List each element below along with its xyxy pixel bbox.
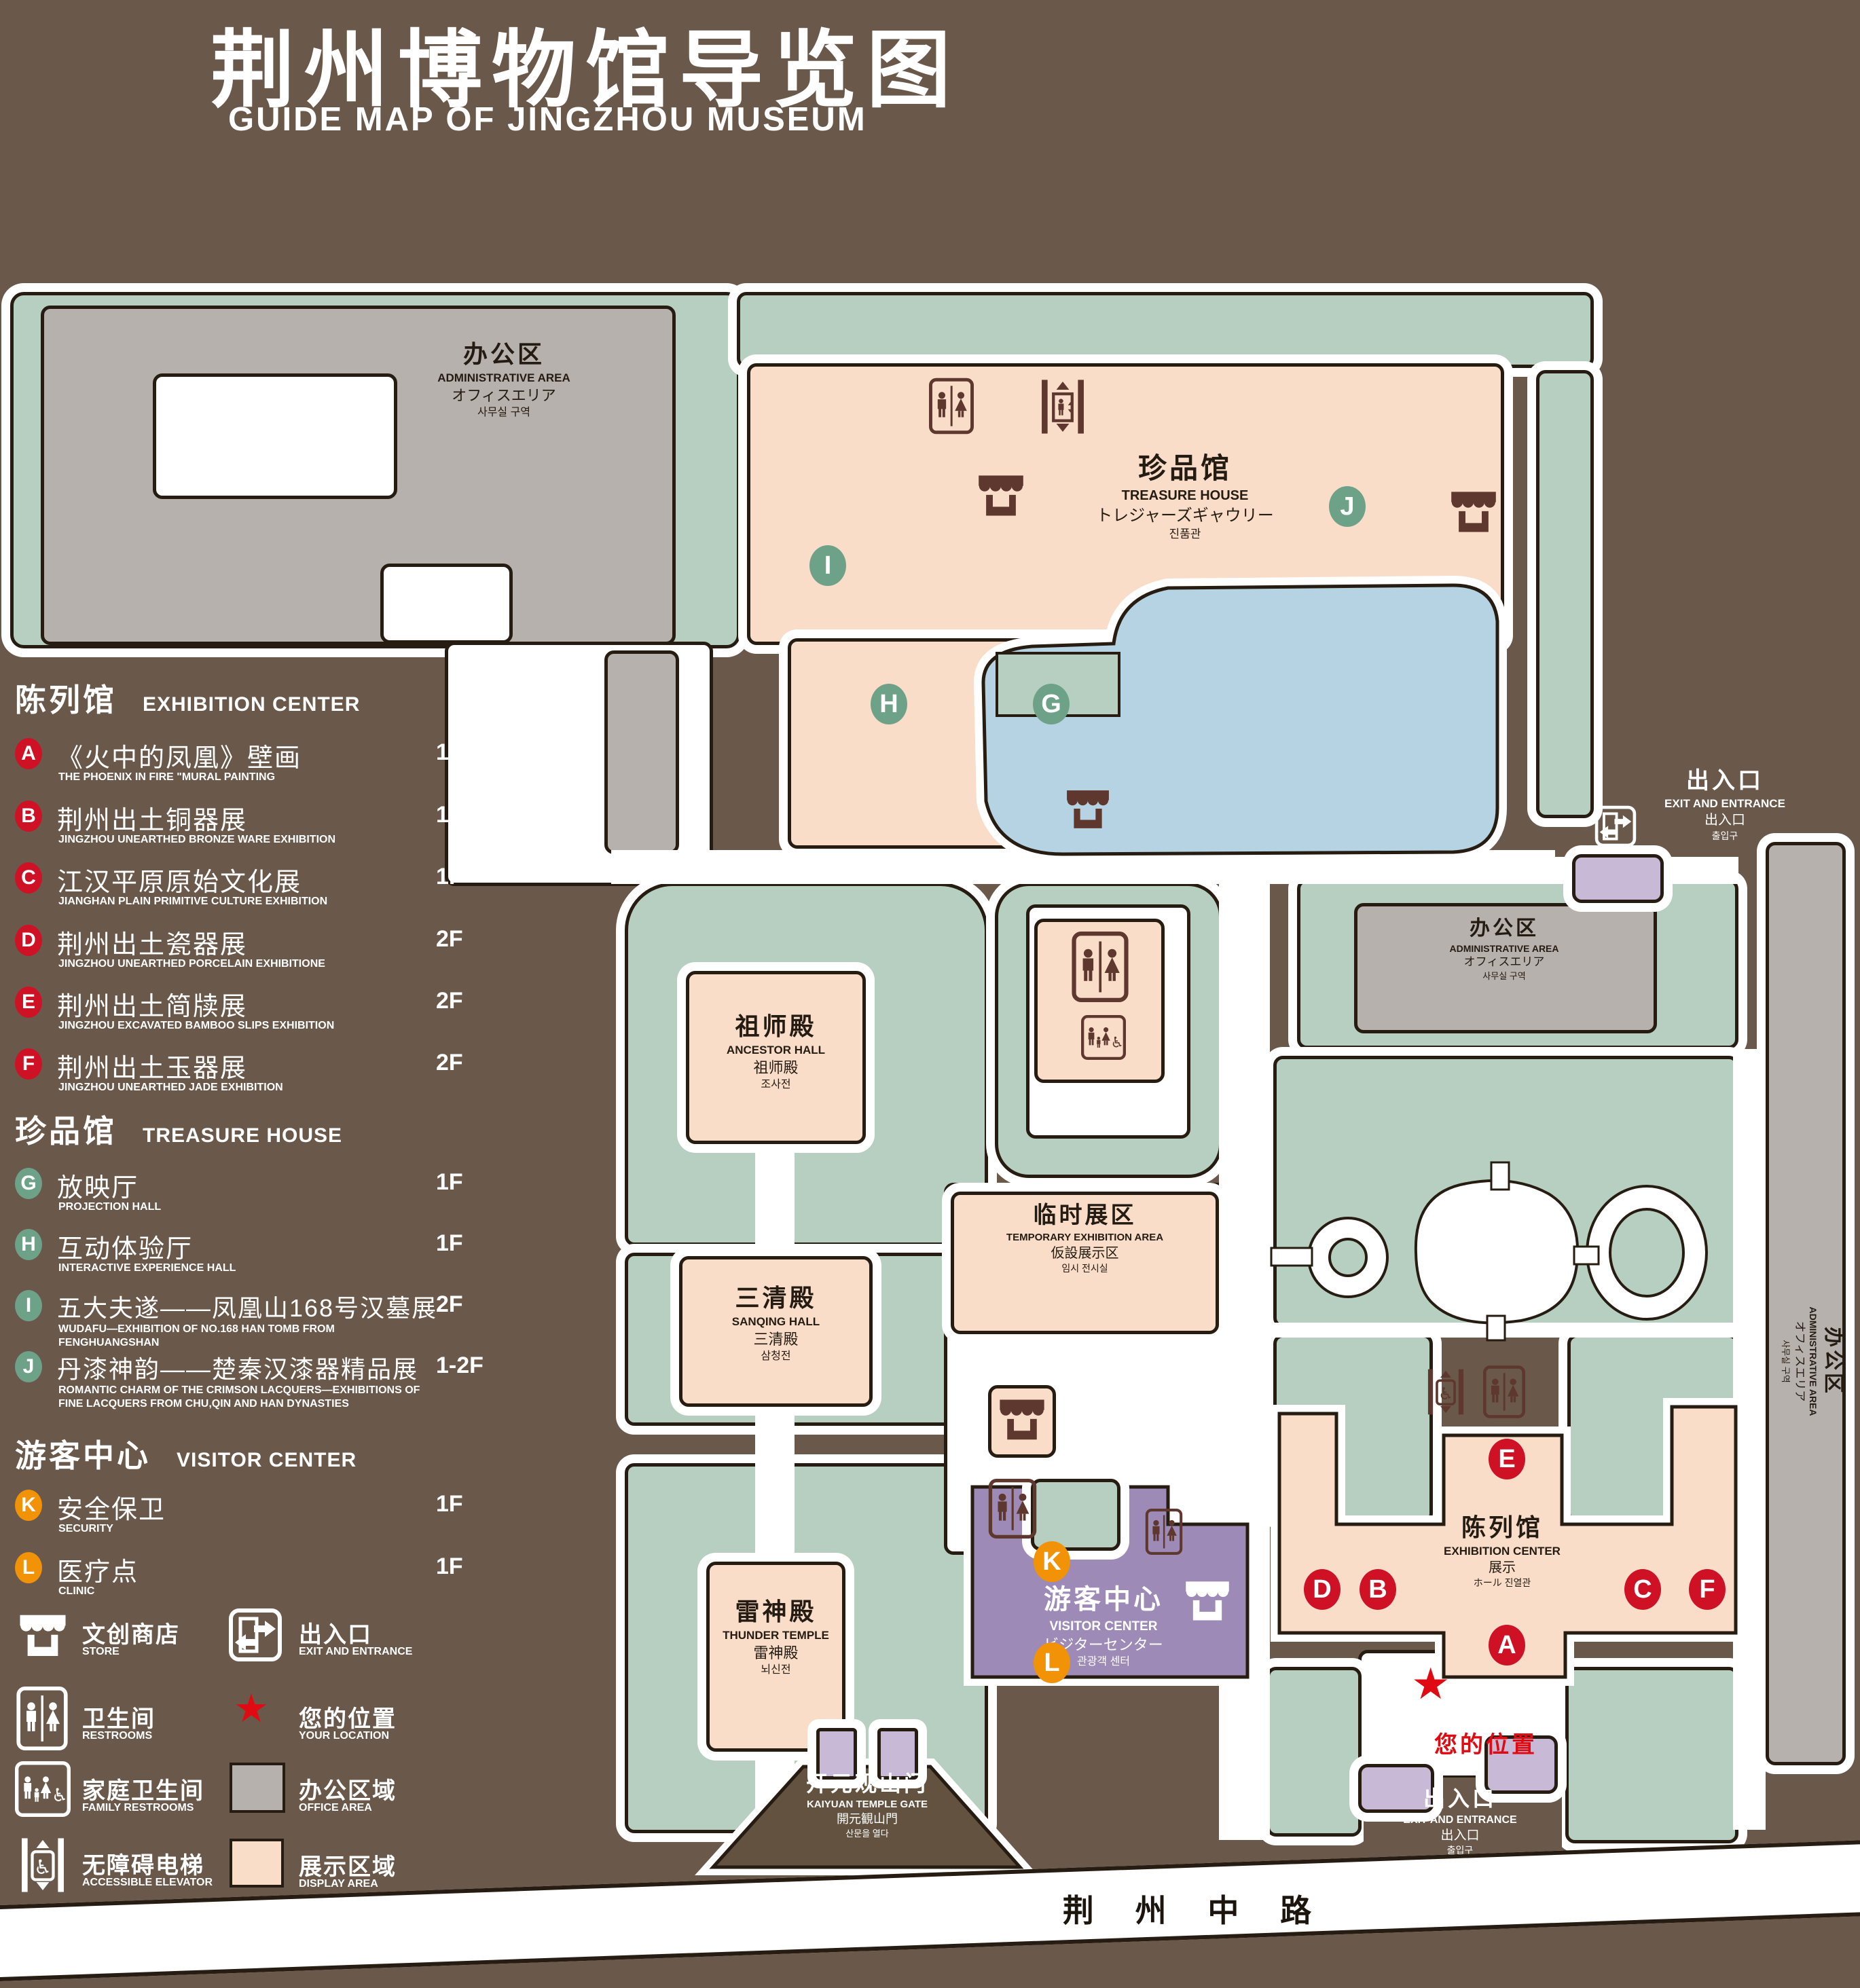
road-label: 荆 州 中 路 (1046, 1886, 1345, 1931)
map-badge-B: B (1360, 1569, 1396, 1610)
restroom-icon (1145, 1509, 1183, 1555)
restroom-icon (1483, 1361, 1525, 1423)
restroom-icon (988, 1479, 1037, 1539)
legend-section-visitor: 游客中心VISITOR CENTER (15, 1431, 357, 1476)
label-admin-northwest: 办公区ADMINISTRATIVE AREAオフィスエリア사무실 구역 (368, 338, 640, 420)
accessible-elevator-icon (16, 1836, 69, 1894)
store-icon (1448, 489, 1499, 536)
map-badge-C: C (1624, 1569, 1661, 1610)
map-badge-I: I (809, 545, 846, 586)
label-exhibition-center: 陈列馆EXHIBITION CENTER展示ホール 진열관 (1387, 1511, 1618, 1589)
legend-item-C: C江汉平原原始文化展JIANGHAN PLAIN PRIMITIVE CULTU… (15, 861, 484, 922)
map-badge-K: K (1034, 1541, 1070, 1582)
map-badge-G: G (1033, 684, 1070, 724)
label-exit-south: 出入口EXIT AND ENTRANCE出入口출입구 (1358, 1784, 1562, 1857)
legend-item-A: A《火中的凤凰》壁画THE PHOENIX IN FIRE "MURAL PAI… (15, 737, 484, 798)
legend-item-K: K安全保卫SECURITY1F (15, 1488, 484, 1549)
restroom-icon (929, 378, 974, 435)
family-restroom-icon (15, 1761, 71, 1817)
location-star-icon: ★ (234, 1689, 269, 1729)
store-icon (17, 1608, 69, 1665)
label-exit-northeast: 出入口EXIT AND ENTRANCE出入口출입구 (1643, 766, 1806, 842)
building-entrance-northeast (1572, 854, 1664, 903)
map-badge-L: L (1034, 1642, 1070, 1683)
legend-item-F: F荆州出土玉器展JINGZHOU UNEARTHED JADE EXHIBITI… (15, 1047, 484, 1108)
exit-icon (228, 1606, 282, 1663)
legend-item-G: G放映厅PROJECTION HALL1F (15, 1166, 484, 1228)
label-ancestor-hall: 祖师殿ANCESTOR HALL祖师殿조사전 (686, 1010, 866, 1092)
legend-item-J: J丹漆神韵——楚秦汉漆器精品展ROMANTIC CHARM OF THE CRI… (15, 1350, 484, 1411)
location-star-icon: ★ (1411, 1662, 1450, 1706)
store-icon (975, 473, 1027, 520)
legend-item-I: I五大夫遂——凤凰山168号汉墓展WUDAFU—EXHIBITION OF NO… (15, 1289, 484, 1350)
elevator-icon (1039, 378, 1087, 436)
map-badge-E: E (1489, 1439, 1525, 1479)
map-badge-A: A (1489, 1625, 1525, 1665)
store-icon (1183, 1577, 1232, 1627)
map-badge-D: D (1304, 1569, 1341, 1610)
display-area-swatch (230, 1839, 284, 1888)
restroom-icon (15, 1687, 69, 1750)
label-thunder-temple: 雷神殿THUNDER TEMPLE雷神殿뇌신전 (693, 1596, 859, 1677)
exit-icon (1594, 805, 1637, 847)
garden-paths (1271, 1162, 1707, 1340)
label-sanqing-hall: 三清殿SANQING HALL三清殿삼청전 (679, 1282, 873, 1363)
store-icon (1063, 788, 1112, 832)
store-icon (997, 1396, 1047, 1445)
page-subtitle: GUIDE MAP OF JINGZHOU MUSEUM (228, 100, 867, 139)
accessible-elevator-icon (1426, 1362, 1465, 1422)
legend-section-treasure: 珍品馆TREASURE HOUSE (15, 1107, 342, 1152)
your-location-label: 您的位置 (1377, 1726, 1594, 1759)
legend-item-E: E荆州出土简牍展JINGZHOU EXCAVATED BAMBOO SLIPS … (15, 985, 484, 1046)
legend-item-H: H互动体验厅INTERACTIVE EXPERIENCE HALL1F (15, 1228, 484, 1289)
legend-item-D: D荆州出土瓷器展JINGZHOU UNEARTHED PORCELAIN EXH… (15, 923, 484, 984)
family-restroom-icon (1081, 1012, 1126, 1063)
map-area-visitor-notch (1031, 1479, 1120, 1551)
label-treasure-house: 珍品馆TREASURE HOUSEトレジャーズギャウリー진품관 (1022, 449, 1348, 542)
label-gate-kaiyuan: 开元观山门KAIYUAN TEMPLE GATE開元観山門산문을 열다 (755, 1769, 979, 1839)
label-temporary-exhibition: 临时展区TEMPORARY EXHIBITION AREA仮設展示区임시 전시실 (951, 1200, 1219, 1275)
label-visitor-center: 游客中心VISITOR CENTERビジターセンター관광객 센터 (1002, 1582, 1205, 1669)
legend-item-L: L医疗点CLINIC1F (15, 1551, 484, 1612)
map-badge-H: H (871, 684, 907, 724)
label-admin-mid: 办公区ADMINISTRATIVE AREAオフィスエリア사무실 구역 (1368, 915, 1640, 982)
restroom-icon (1072, 932, 1129, 1002)
office-area-swatch (230, 1763, 285, 1813)
label-admin-strip-east: 办公区ADMINISTRATIVE AREAオフィスエリア사무실 구역 (1772, 1246, 1846, 1477)
map-badge-F: F (1689, 1569, 1726, 1610)
legend-item-B: B荆州出土铜器展JINGZHOU UNEARTHED BRONZE WARE E… (15, 799, 484, 860)
map-badge-J: J (1329, 486, 1366, 527)
legend-section-exhibition: 陈列馆EXHIBITION CENTER (15, 676, 360, 720)
